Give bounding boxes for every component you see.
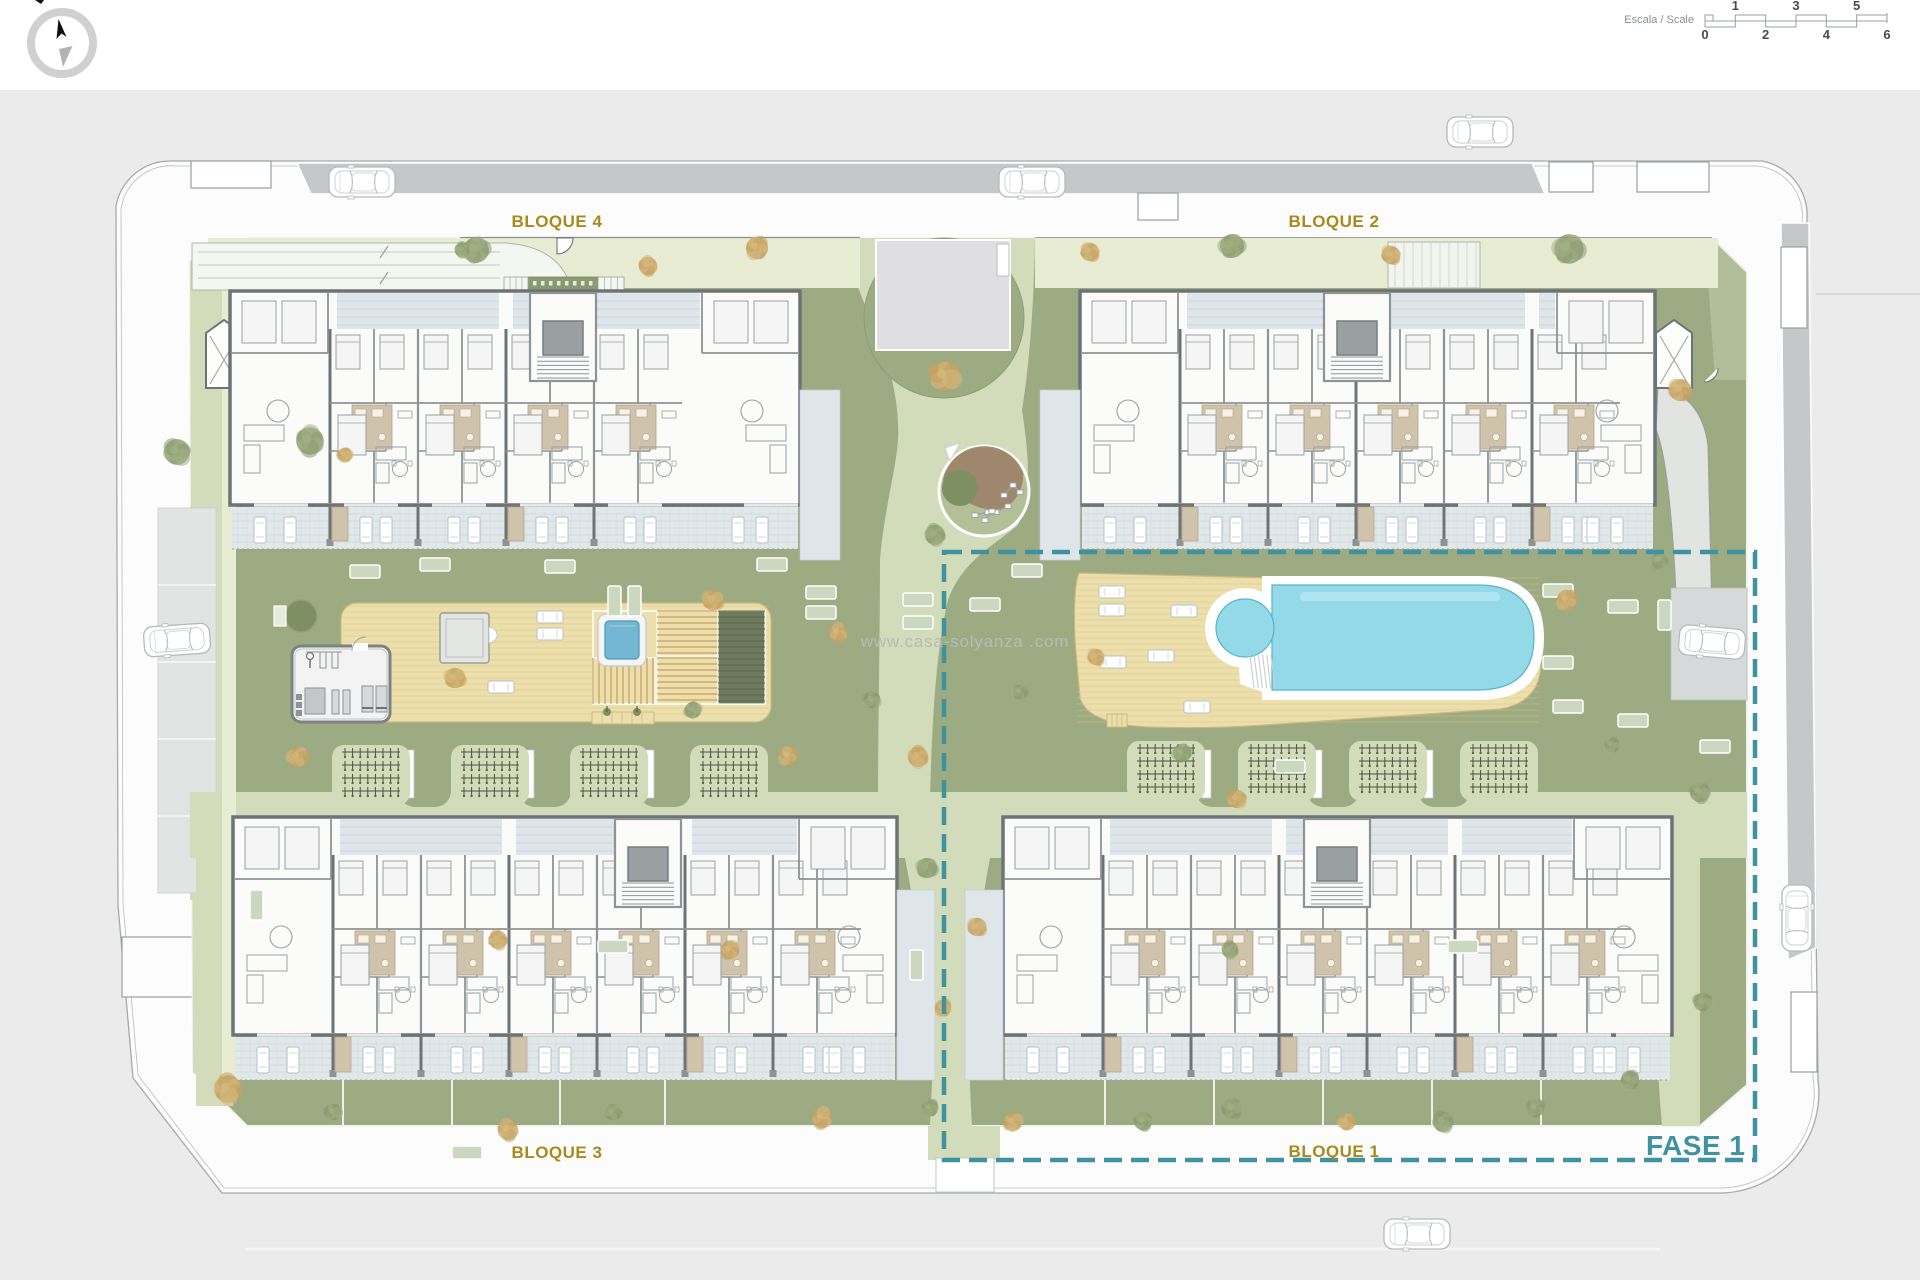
- svg-text:www.casa-solyanza .com: www.casa-solyanza .com: [860, 632, 1069, 651]
- svg-text:2: 2: [1762, 27, 1769, 42]
- svg-text:BLOQUE 2: BLOQUE 2: [1289, 212, 1380, 231]
- svg-text:BLOQUE 3: BLOQUE 3: [512, 1143, 603, 1162]
- svg-text:4: 4: [1823, 27, 1831, 42]
- svg-text:FASE 1: FASE 1: [1646, 1130, 1745, 1161]
- svg-text:3: 3: [1792, 0, 1799, 13]
- svg-text:0: 0: [1701, 27, 1708, 42]
- svg-text:6: 6: [1883, 27, 1890, 42]
- svg-text:5: 5: [1853, 0, 1860, 13]
- svg-text:1: 1: [1732, 0, 1739, 13]
- svg-text:Escala / Scale: Escala / Scale: [1624, 14, 1694, 26]
- svg-text:BLOQUE 1: BLOQUE 1: [1289, 1142, 1380, 1161]
- svg-text:BLOQUE 4: BLOQUE 4: [512, 212, 603, 231]
